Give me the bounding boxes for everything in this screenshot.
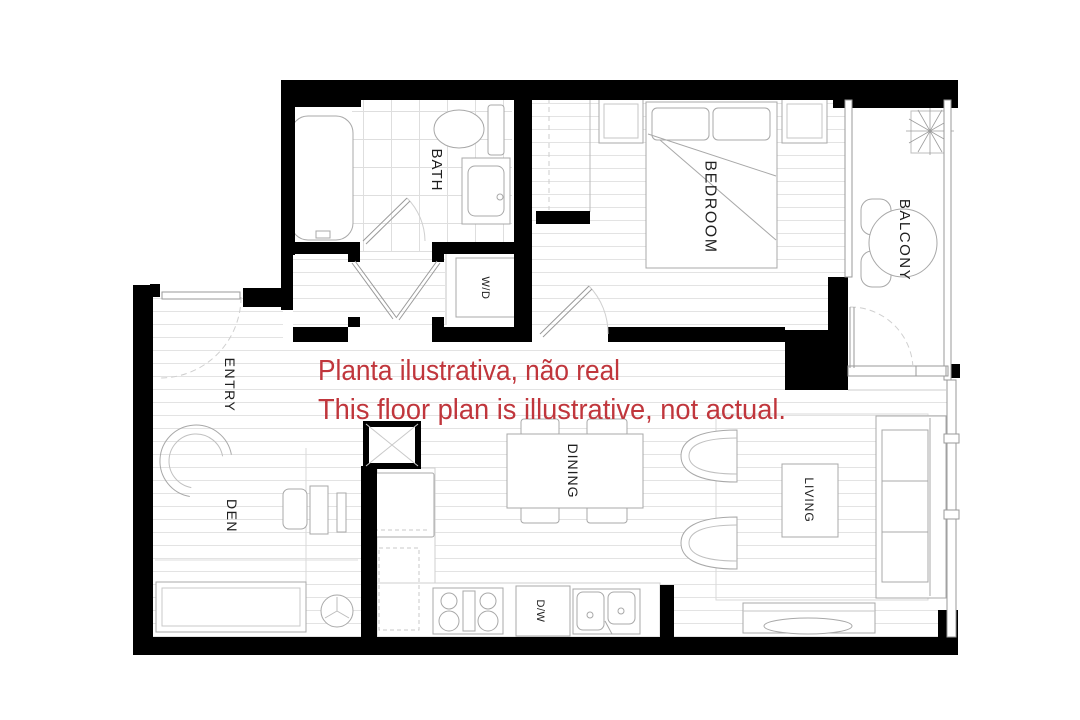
nightstand-left-inner	[604, 104, 638, 138]
shaft	[366, 424, 418, 466]
bathtub-faucet	[316, 231, 330, 238]
annotation-line-1: Planta ilustrativa, não real	[318, 355, 620, 387]
wall-block-bedroom-corner	[785, 330, 848, 390]
dining-chair-3	[521, 506, 559, 523]
door-post-3	[348, 317, 360, 327]
wall-bedroom-bottom	[608, 327, 785, 342]
door-post-1	[348, 252, 360, 262]
window-bedroom-balcony	[845, 100, 852, 277]
wall-kitchen-end	[660, 585, 674, 637]
room-label-dining: DINING	[565, 444, 581, 499]
kitchen-sink	[573, 589, 640, 634]
door-post-2	[432, 252, 444, 262]
room-label-living: LIVING	[802, 477, 816, 522]
door-post-4	[432, 317, 444, 327]
room-label-balcony: BALCONY	[896, 199, 913, 281]
tv	[764, 618, 852, 634]
daybed-inner	[162, 588, 300, 626]
wall-kitchen	[361, 466, 377, 637]
desk-chair	[283, 489, 307, 529]
nightstand-right-inner	[787, 104, 822, 138]
balcony-railing-right	[944, 100, 951, 380]
room-label-washer-dryer: W/D	[479, 277, 491, 300]
room-label-dishwasher: D/W	[534, 600, 546, 623]
wall-left	[133, 285, 153, 655]
bath-sink	[468, 166, 504, 216]
toilet-tank	[488, 105, 504, 155]
room-label-entry: ENTRY	[222, 358, 238, 413]
balcony-door-leaf	[850, 307, 854, 368]
wall-bath-left	[281, 80, 295, 255]
wall-bath-bedroom	[514, 80, 532, 342]
bathtub	[291, 116, 353, 240]
wall-balcony-divider-end	[828, 277, 848, 330]
room-label-bath: BATH	[428, 149, 445, 192]
desk-shelf	[337, 493, 346, 532]
desk	[310, 486, 328, 534]
pillow-left	[652, 108, 709, 140]
room-label-bedroom: BEDROOM	[701, 160, 718, 253]
entry-door-leaf	[162, 292, 240, 299]
balcony-window-detail	[916, 366, 946, 376]
dining-chair-4	[587, 506, 627, 523]
wall-bottom	[133, 637, 958, 655]
wall-bath-bottom-right	[432, 242, 522, 254]
hall-floor	[293, 252, 445, 327]
bath-sink-faucet	[497, 194, 503, 200]
wall-entry-step	[243, 288, 293, 307]
pillow-right	[713, 108, 770, 140]
floor-plan-drawing: BATH W/D BEDROOM BALCONY ENTRY DEN DININ…	[0, 0, 1080, 720]
floor-plan-canvas: BATH W/D BEDROOM BALCONY ENTRY DEN DININ…	[0, 0, 1080, 720]
wall-hall-bottom-left	[293, 327, 348, 342]
room-label-den: DEN	[224, 499, 240, 533]
window-sill-1	[944, 434, 959, 443]
balcony-door-arc	[850, 307, 913, 370]
window-living-right	[947, 380, 956, 637]
toilet-bowl	[434, 110, 484, 148]
fridge	[370, 473, 434, 537]
sofa	[876, 416, 946, 598]
wall-closet-bottom	[536, 211, 590, 224]
annotation-line-2: This floor plan is illustrative, not act…	[318, 394, 786, 426]
window-sill-2	[944, 510, 959, 519]
